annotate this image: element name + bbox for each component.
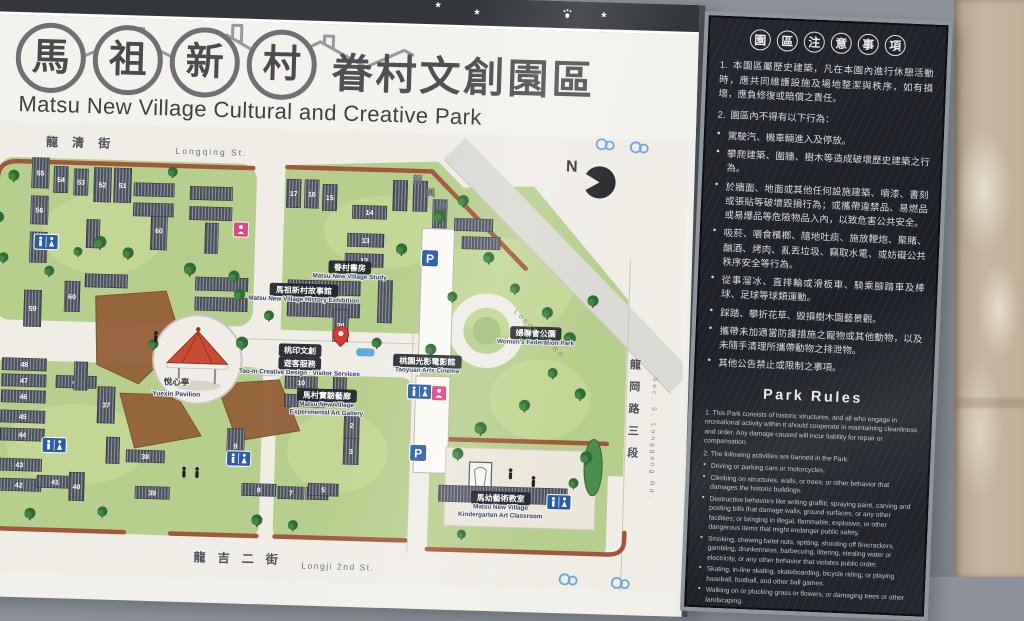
parking-icon: P [414,446,422,460]
map-building: 44 [0,428,45,441]
rule-bullet: 攀爬建築、圍牆、樹木等造成破壞歷史建築之行為。 [715,148,930,185]
wall-stain [954,398,1024,408]
info-sign [356,348,374,357]
photo-of-park-map-sign: { "sign": { "title": { "circled_chars": … [0,0,1024,577]
building-number: 46 [19,394,27,401]
star-icon: * [474,6,480,21]
map-building [189,206,232,220]
logo-circle-char: 新 [169,26,241,98]
building-roof-stripes [462,237,501,250]
street-label-longgang-zh: 三 [628,424,639,437]
building-number: 44 [18,432,26,439]
street-label-longgang-zh: 段 [627,446,639,460]
street-label-longgang-zh: 路 [628,401,640,415]
building-number: 48 [20,362,28,369]
building-number: 43 [15,462,23,469]
building-roof-stripes [393,180,408,211]
map-building: 47 [2,374,47,387]
street-label-longgang-zh: 龍 [630,357,641,371]
sign-title-area: 馬祖新村眷村文創園區 Matsu New Village Cultural an… [0,14,699,141]
building-roof-stripes [106,437,120,463]
toilet-icon [42,437,67,453]
toilet-icon [34,234,59,250]
star-icon: * [601,9,607,24]
map-building: 8 [242,483,276,496]
toilet-icon [407,384,432,400]
rules-header-char: 意 [830,32,852,54]
rules-en-section: 1. This Park consists of historic struct… [696,408,919,621]
nursing-room-icon [233,222,249,238]
building-roof-stripes [189,206,232,220]
toilet-icon [39,240,42,246]
map-building: 17 [286,179,301,208]
street-label-longxing-zh: 龍 [413,173,423,186]
map-building: 40 [69,472,85,501]
rules-header-char: 注 [803,31,825,53]
facility-label-zh: 馬村實驗藝廊 [303,390,351,401]
logo-circle-char: 馬 [15,22,87,94]
compass-north-label: N [566,157,578,175]
map-building [134,183,175,197]
paw-print-icon [563,10,572,19]
building-number: 13 [362,238,370,245]
nursing-room-icon [431,385,447,401]
map-building: 55 [32,158,50,189]
rule-bullet-list: Driving or parking cars or motorcycles.C… [696,462,917,621]
rule-bullet: Destructive behaviors like writing graff… [700,494,915,541]
brick-wall [170,533,256,536]
person-figure [509,468,513,479]
building-number: 16 [308,191,316,198]
map-building [462,237,501,250]
map-building: 39 [135,486,169,499]
building-number: 38 [141,454,149,461]
rules-zh-section: 1. 本園區屬歷史建築，凡在本園內進行休憩活動時，應共同維護設施及場地整潔與秩序… [707,59,934,380]
building-number: 7 [289,490,293,497]
map-building: 38 [126,450,165,463]
map-building: 54 [54,166,69,193]
rule-bullet: 攜帶未加適當防護措施之寵物或其他動物，以及未隨手清理所攜帶動物之排泄物。 [708,324,923,361]
street-label-longqing-en: Longqing St. [175,146,247,158]
building-number: 59 [29,306,37,313]
street-label-longgang-zh: 岡 [629,380,640,393]
nursing-room-icon [431,385,447,401]
map-building: 56 [31,196,49,225]
building-number: 2 [350,423,354,430]
building-number: 15 [326,195,334,202]
rule-bullet-list: 駕駛汽、機車輛進入及停放。攀爬建築、圍牆、樹木等造成破壞歷史建築之行為。於牆面、… [707,129,931,379]
building-number: 54 [57,177,65,184]
facility-label-zh: 桃印文創 [284,345,316,356]
map-building: 53 [74,169,89,196]
building-number: 51 [119,183,127,190]
building-roof-stripes [74,362,88,390]
map-building: 7 [278,486,304,499]
map-building [190,186,233,200]
person-figure [532,480,535,487]
map-building: 43 [0,458,42,471]
toilet-icon [226,451,251,467]
building-number: 37 [102,402,110,409]
map-building: 52 [94,167,112,202]
building-number: 10 [297,380,305,387]
building-number: 5 [321,487,325,494]
building-number: 56 [35,208,43,215]
building-roof-stripes [205,223,219,254]
map-building: 51 [114,168,132,203]
building-roof-stripes [454,218,493,231]
facility-label: 馬村實驗藝廊Matsu New VillageExperimental Art … [290,388,365,418]
building-number: 60 [155,228,163,235]
map-building: 60 [64,281,80,312]
building-number: 41 [51,479,59,486]
map-building: 15 [322,184,337,211]
logo-circle-char: 村 [246,29,318,101]
building-roof-stripes [85,274,128,288]
building-number: 17 [290,191,298,198]
park-rules-panel: 園區注意事項 1. 本園區屬歷史建築，凡在本園內進行休憩活動時，應共同維護設施及… [680,11,953,621]
building-number: 42 [15,482,23,489]
rule-bullet: 從事溜冰、直排輪或滑板車、騎乘腳踏車及棒球、足球等球類運動。 [710,274,925,311]
concrete-wall [954,0,1024,577]
street-label-longqing-zh: 龍清街 [46,134,125,151]
person-figure [195,467,199,478]
person-figure [154,331,158,342]
title-suffix-zh: 眷村文創園區 [331,39,597,109]
map-building: 3 [343,438,359,465]
rules-header-char: 區 [776,30,798,52]
map-building: 37 [97,387,115,424]
facility-label: 桃園光影電影館Taoyuan Arts Cinema [393,354,462,376]
nursing-room-icon [233,222,249,238]
map-building [454,218,493,231]
logo-circle-char: 祖 [92,24,164,96]
building-number: 9 [233,444,237,451]
building-number: 45 [19,414,27,421]
parking-icon: P [426,252,434,266]
map-building: 10 [285,376,317,389]
rules-header-char: 事 [857,33,879,55]
rules-header-circled: 園區注意事項 [720,28,935,58]
building-number: 3 [349,449,353,456]
rule-item: 2. 園區內不得有以下行為： [717,109,931,133]
person-figure [182,467,186,478]
map-building: 59 [24,290,42,327]
rule-bullet: 吸菸、嚼食檳榔、隨地吐痰、施放鞭炮、聚賭、酗酒、烤肉、亂丟垃圾、竊取水電、或妨礙… [711,227,927,279]
toilet-icon [413,390,416,396]
person-figure [509,472,512,479]
map-building: 13 [347,233,384,247]
building-number: 39 [148,490,156,497]
building-number: 8 [257,487,261,494]
pavilion-label-zh: 悅心亭 [164,377,190,388]
rules-en-title: Park Rules [706,384,920,409]
map-building: 46 [1,390,46,403]
building-roof-stripes [190,186,233,200]
rule-item: 1. 本園區屬歷史建築，凡在本園內進行休憩活動時，應共同維護設施及場地整潔與秩序… [718,59,934,112]
building-number: 47 [20,378,28,385]
toilet-icon [232,457,235,463]
building-number: 55 [37,170,45,177]
facility-label-zh: 眷村書房 [333,262,366,273]
parking-icon: P [421,249,439,267]
map-building [205,223,219,254]
facility-label-zh: 馬幼藝術教室 [477,492,525,503]
map-building: 16 [304,180,319,209]
street-label-longji-zh: 龍吉二街 [193,549,290,567]
toilet-icon [547,494,572,510]
map-building: 5 [308,483,338,496]
building-number: 14 [366,210,374,217]
toilet-icon [47,443,50,449]
building-roof-stripes [134,183,175,197]
map-building: 41 [37,475,74,488]
rules-header-char: 項 [884,35,906,57]
star-icon: * [435,0,441,14]
building-roof-stripes [377,280,392,323]
person-figure [195,471,198,478]
map-building: 14 [352,205,387,219]
map-building: 42 [0,478,41,491]
rules-header-char: 園 [749,29,771,51]
map-building: 48 [2,358,47,371]
facility-label-zh: 馬祖新村故事館 [276,284,332,296]
rule-item: 1. This Park consists of historic struct… [704,408,919,455]
building-number: 60 [68,294,76,301]
person-figure [182,471,185,478]
rule-bullet: 於牆面、地面或其他任何設施建築、噴漆、書刻或張貼等破壞毀損行為；或攜帶違禁品、易… [713,180,929,232]
map-building [393,180,408,211]
person-figure [531,476,535,487]
map-building [74,362,88,390]
map-building: 45 [1,410,46,423]
building-roof-stripes [133,203,174,217]
map-building [377,280,392,323]
building-number: 52 [99,182,107,189]
street-label-longxing-zh: 興 [425,186,435,199]
building-number: 40 [72,484,80,491]
building-number: 53 [77,180,85,187]
parking-icon: P [409,444,427,462]
illustrated-park-map: 5554535251565759606017161514131220484746… [0,120,690,593]
map-sign-panel: * * * 馬祖新村眷村文創園區 Matsu New Village Cultu… [0,0,706,617]
map-building [133,203,174,217]
facility-label-zh: 桃園光影電影館 [399,355,455,367]
map-building [85,274,128,288]
map-building [106,437,120,463]
map-building: 60 [150,211,167,250]
person-figure [154,335,157,342]
facility-label-zh: 遊客服務 [284,358,317,369]
pavilion-label-en: Yuexin Pavilion [152,390,200,398]
toilet-icon [552,501,555,507]
street-label-longxing-zh: 路 [438,200,449,213]
